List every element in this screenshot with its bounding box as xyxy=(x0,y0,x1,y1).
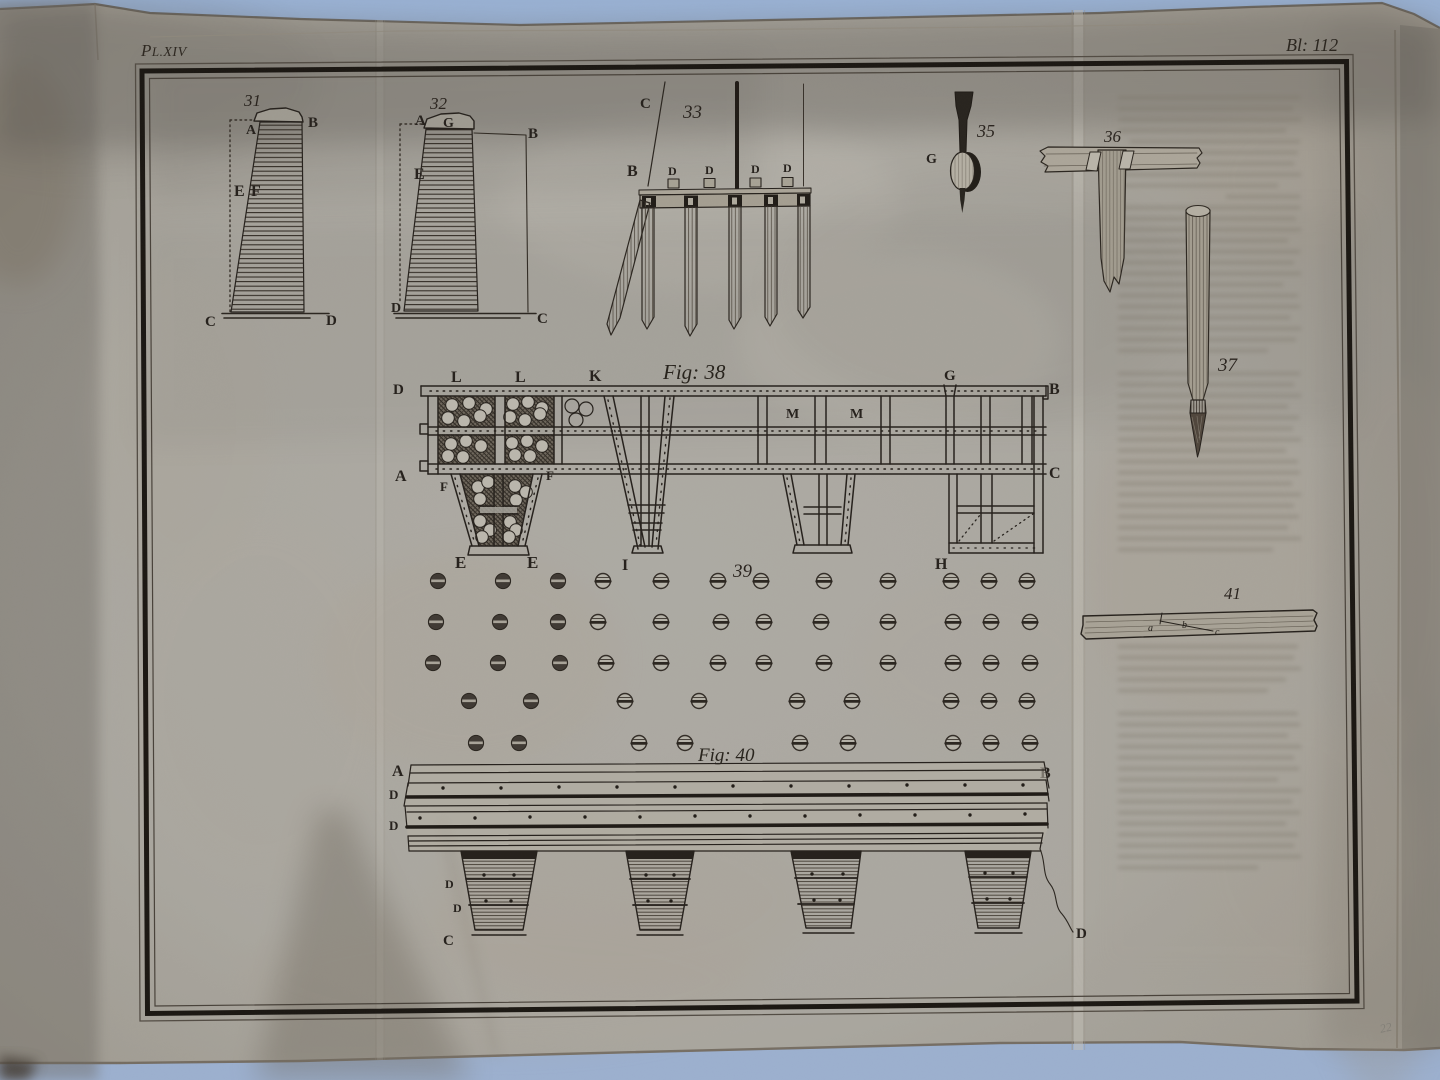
svg-text:A: A xyxy=(392,763,404,780)
svg-text:41: 41 xyxy=(1224,584,1241,603)
svg-text:D: D xyxy=(705,163,714,177)
svg-text:M: M xyxy=(786,407,799,422)
svg-text:D: D xyxy=(445,877,454,891)
svg-text:D: D xyxy=(389,787,398,802)
svg-text:E: E xyxy=(414,166,425,183)
svg-text:D: D xyxy=(391,301,401,316)
svg-text:L: L xyxy=(451,369,462,386)
svg-text:31: 31 xyxy=(243,91,261,110)
svg-text:36: 36 xyxy=(1103,127,1122,146)
svg-text:E: E xyxy=(455,553,466,572)
svg-text:C: C xyxy=(443,933,454,949)
svg-text:L: L xyxy=(515,369,526,386)
svg-text:C: C xyxy=(1049,465,1061,482)
svg-text:c: c xyxy=(1215,627,1220,638)
svg-text:E: E xyxy=(527,553,538,572)
svg-text:33: 33 xyxy=(682,102,702,123)
svg-text:A: A xyxy=(415,113,426,129)
svg-text:D: D xyxy=(453,901,462,915)
svg-text:D: D xyxy=(389,818,398,833)
svg-text:39: 39 xyxy=(732,561,753,582)
svg-text:C: C xyxy=(640,96,651,112)
svg-text:35: 35 xyxy=(976,121,995,141)
svg-text:37: 37 xyxy=(1217,355,1239,376)
svg-text:D: D xyxy=(393,382,404,398)
svg-text:A: A xyxy=(395,468,407,485)
svg-text:B: B xyxy=(528,126,538,142)
svg-text:Fig: 38: Fig: 38 xyxy=(662,360,726,384)
svg-text:E: E xyxy=(234,183,245,200)
svg-text:H: H xyxy=(935,556,948,573)
svg-text:I: I xyxy=(622,557,628,574)
svg-text:G: G xyxy=(944,368,956,384)
svg-text:Bl: 112: Bl: 112 xyxy=(1286,35,1338,55)
svg-text:F: F xyxy=(251,183,261,200)
svg-text:C: C xyxy=(537,311,548,327)
svg-text:b: b xyxy=(1182,620,1187,631)
svg-text:D: D xyxy=(668,164,677,178)
svg-text:G: G xyxy=(443,116,454,131)
svg-text:C: C xyxy=(205,314,216,330)
svg-text:F: F xyxy=(440,479,448,494)
svg-text:M: M xyxy=(850,407,863,422)
svg-text:G: G xyxy=(926,152,937,167)
svg-text:D: D xyxy=(751,162,760,176)
svg-text:a: a xyxy=(1148,623,1153,634)
svg-text:D: D xyxy=(783,161,792,175)
svg-text:K: K xyxy=(589,368,602,385)
svg-text:D: D xyxy=(326,313,337,329)
svg-text:F: F xyxy=(546,468,554,483)
svg-text:B: B xyxy=(308,115,318,131)
svg-text:A: A xyxy=(246,123,257,138)
svg-text:32: 32 xyxy=(429,94,448,113)
svg-text:D: D xyxy=(1076,926,1087,942)
svg-text:B: B xyxy=(1049,381,1060,398)
svg-text:B: B xyxy=(627,163,638,180)
